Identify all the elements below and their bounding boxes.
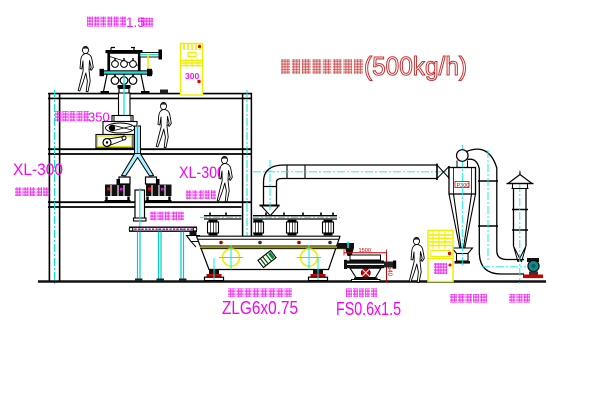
svg-text:ZLG6x0.75: ZLG6x0.75 xyxy=(222,298,298,318)
svg-text:FS0.6x1.5: FS0.6x1.5 xyxy=(336,299,401,319)
svg-text:300: 300 xyxy=(185,71,199,81)
svg-text:(500kg/h): (500kg/h) xyxy=(364,51,467,81)
svg-text:XL-300: XL-300 xyxy=(179,163,225,182)
svg-text:540: 540 xyxy=(386,266,392,277)
svg-text:1500: 1500 xyxy=(359,248,371,254)
svg-text:P300: P300 xyxy=(457,183,470,189)
svg-text:XL-300: XL-300 xyxy=(13,160,63,179)
svg-text:350: 350 xyxy=(88,110,110,125)
